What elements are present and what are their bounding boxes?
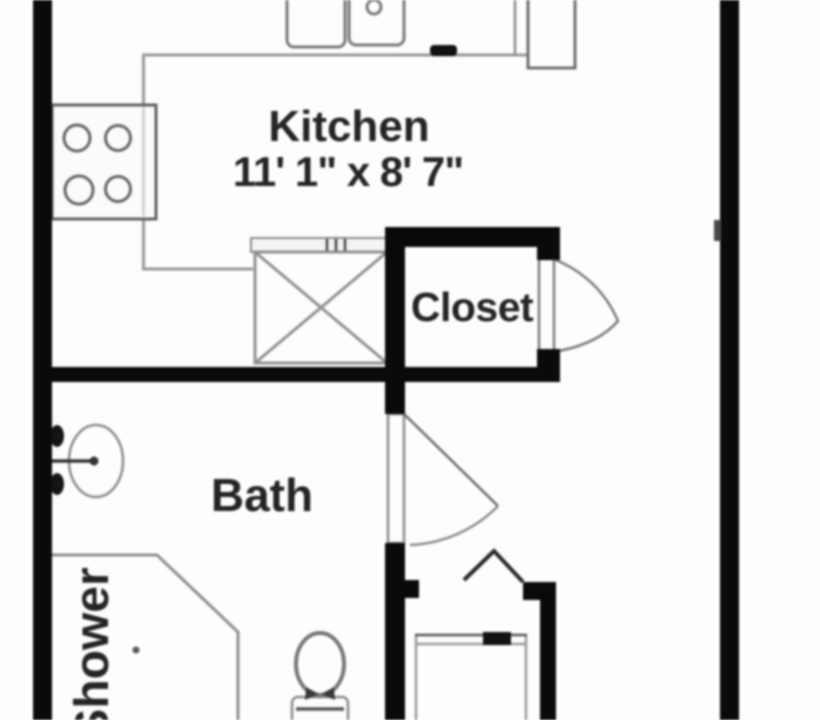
svg-text:Closet: Closet [411,284,534,330]
svg-text:Bath: Bath [211,469,313,521]
svg-text:11' 1" x 8' 7": 11' 1" x 8' 7" [233,148,463,195]
svg-text:Kitchen: Kitchen [268,102,429,151]
svg-text:Shower: Shower [66,567,119,720]
